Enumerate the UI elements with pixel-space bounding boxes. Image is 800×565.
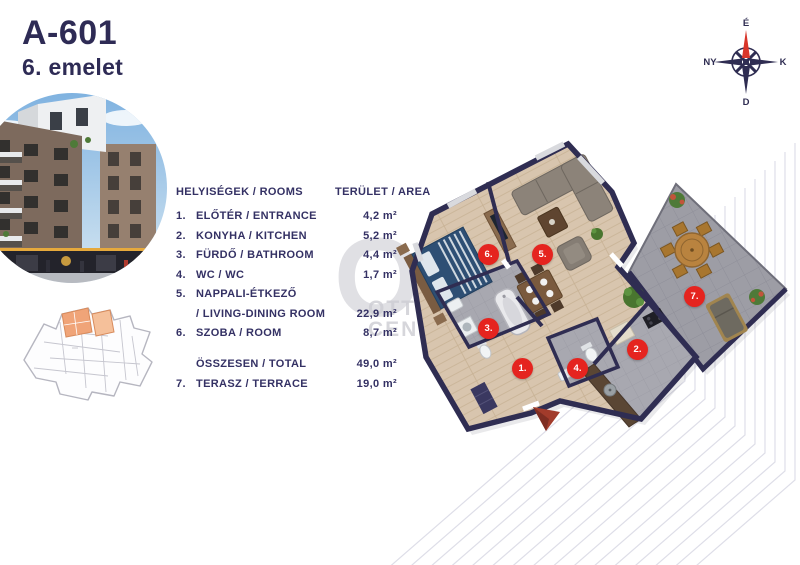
- row-name: NAPPALI-ÉTKEZŐ: [196, 288, 335, 300]
- row-area: 22,9 m²: [335, 308, 397, 320]
- row-num: 1.: [176, 210, 196, 222]
- row-name: SZOBA / ROOM: [196, 327, 335, 339]
- table-row: 3. FÜRDŐ / BATHROOM 4,4 m²: [176, 249, 397, 261]
- table-row: 2. KONYHA / KITCHEN 5,2 m²: [176, 230, 397, 242]
- compass: É K D NY: [704, 16, 788, 108]
- street-level: [0, 248, 168, 284]
- compass-east-label: K: [780, 57, 787, 68]
- terrace-plant: [669, 192, 685, 208]
- room-badge-1: 1.: [512, 358, 533, 379]
- row-num: 3.: [176, 249, 196, 261]
- row-name: FÜRDŐ / BATHROOM: [196, 249, 335, 261]
- room-badge-7: 7.: [684, 286, 705, 307]
- row-name: KONYHA / KITCHEN: [196, 230, 335, 242]
- row-num: 2.: [176, 230, 196, 242]
- row-name: ELŐTÉR / ENTRANCE: [196, 210, 335, 222]
- page-subtitle: 6. emelet: [22, 54, 123, 81]
- row-area: 4,4 m²: [335, 249, 397, 261]
- row-area: 19,0 m²: [335, 378, 397, 390]
- compass-rose: [714, 30, 778, 94]
- building-photo: [0, 92, 168, 284]
- table-row-terrace: 7. TERASZ / TERRACE 19,0 m²: [176, 378, 397, 390]
- plant: [591, 228, 603, 240]
- table-row: 1. ELŐTÉR / ENTRANCE 4,2 m²: [176, 210, 397, 222]
- row-name-line2: / LIVING-DINING ROOM: [196, 308, 335, 320]
- row-area: 8,7 m²: [335, 327, 397, 339]
- rooms-table: HELYISÉGEK / ROOMS TERÜLET / AREA 1. ELŐ…: [176, 186, 397, 406]
- row-name: TERASZ / TERRACE: [196, 378, 335, 390]
- table-row-continued: / LIVING-DINING ROOM 22,9 m²: [176, 308, 397, 320]
- room-badge-4: 4.: [567, 358, 588, 379]
- compass-south-label: D: [743, 97, 750, 108]
- table-row: 5. NAPPALI-ÉTKEZŐ: [176, 288, 397, 300]
- compass-west-label: NY: [704, 57, 717, 68]
- room-badge-5: 5.: [532, 244, 553, 265]
- compass-north-label: É: [743, 18, 749, 29]
- building-right: [100, 144, 156, 262]
- row-num: 5.: [176, 288, 196, 300]
- row-num: 6.: [176, 327, 196, 339]
- col-rooms: HELYISÉGEK / ROOMS: [176, 186, 335, 198]
- row-num: 4.: [176, 269, 196, 281]
- row-area: 5,2 m²: [335, 230, 397, 242]
- table-header: HELYISÉGEK / ROOMS TERÜLET / AREA: [176, 186, 397, 198]
- row-num: 7.: [176, 378, 196, 390]
- col-area: TERÜLET / AREA: [335, 186, 397, 198]
- row-name: WC / WC: [196, 269, 335, 281]
- key-plan-unit-highlight: [62, 308, 114, 337]
- building-main: [0, 118, 91, 262]
- table-row: 4. WC / WC 1,7 m²: [176, 269, 397, 281]
- entrance-arrow: [533, 407, 560, 431]
- total-label: ÖSSZESEN / TOTAL: [196, 358, 335, 370]
- row-area: 4,2 m²: [335, 210, 397, 222]
- row-area: 1,7 m²: [335, 269, 397, 281]
- terrace-plant: [749, 289, 765, 305]
- table-total-row: ÖSSZESEN / TOTAL 49,0 m²: [176, 358, 397, 370]
- room-badge-3: 3.: [478, 318, 499, 339]
- total-area: 49,0 m²: [335, 358, 397, 370]
- key-plan: [8, 292, 168, 407]
- table-row: 6. SZOBA / ROOM 8,7 m²: [176, 327, 397, 339]
- room-badge-6: 6.: [478, 244, 499, 265]
- room-badge-2: 2.: [627, 339, 648, 360]
- page-title: A-601: [22, 14, 117, 53]
